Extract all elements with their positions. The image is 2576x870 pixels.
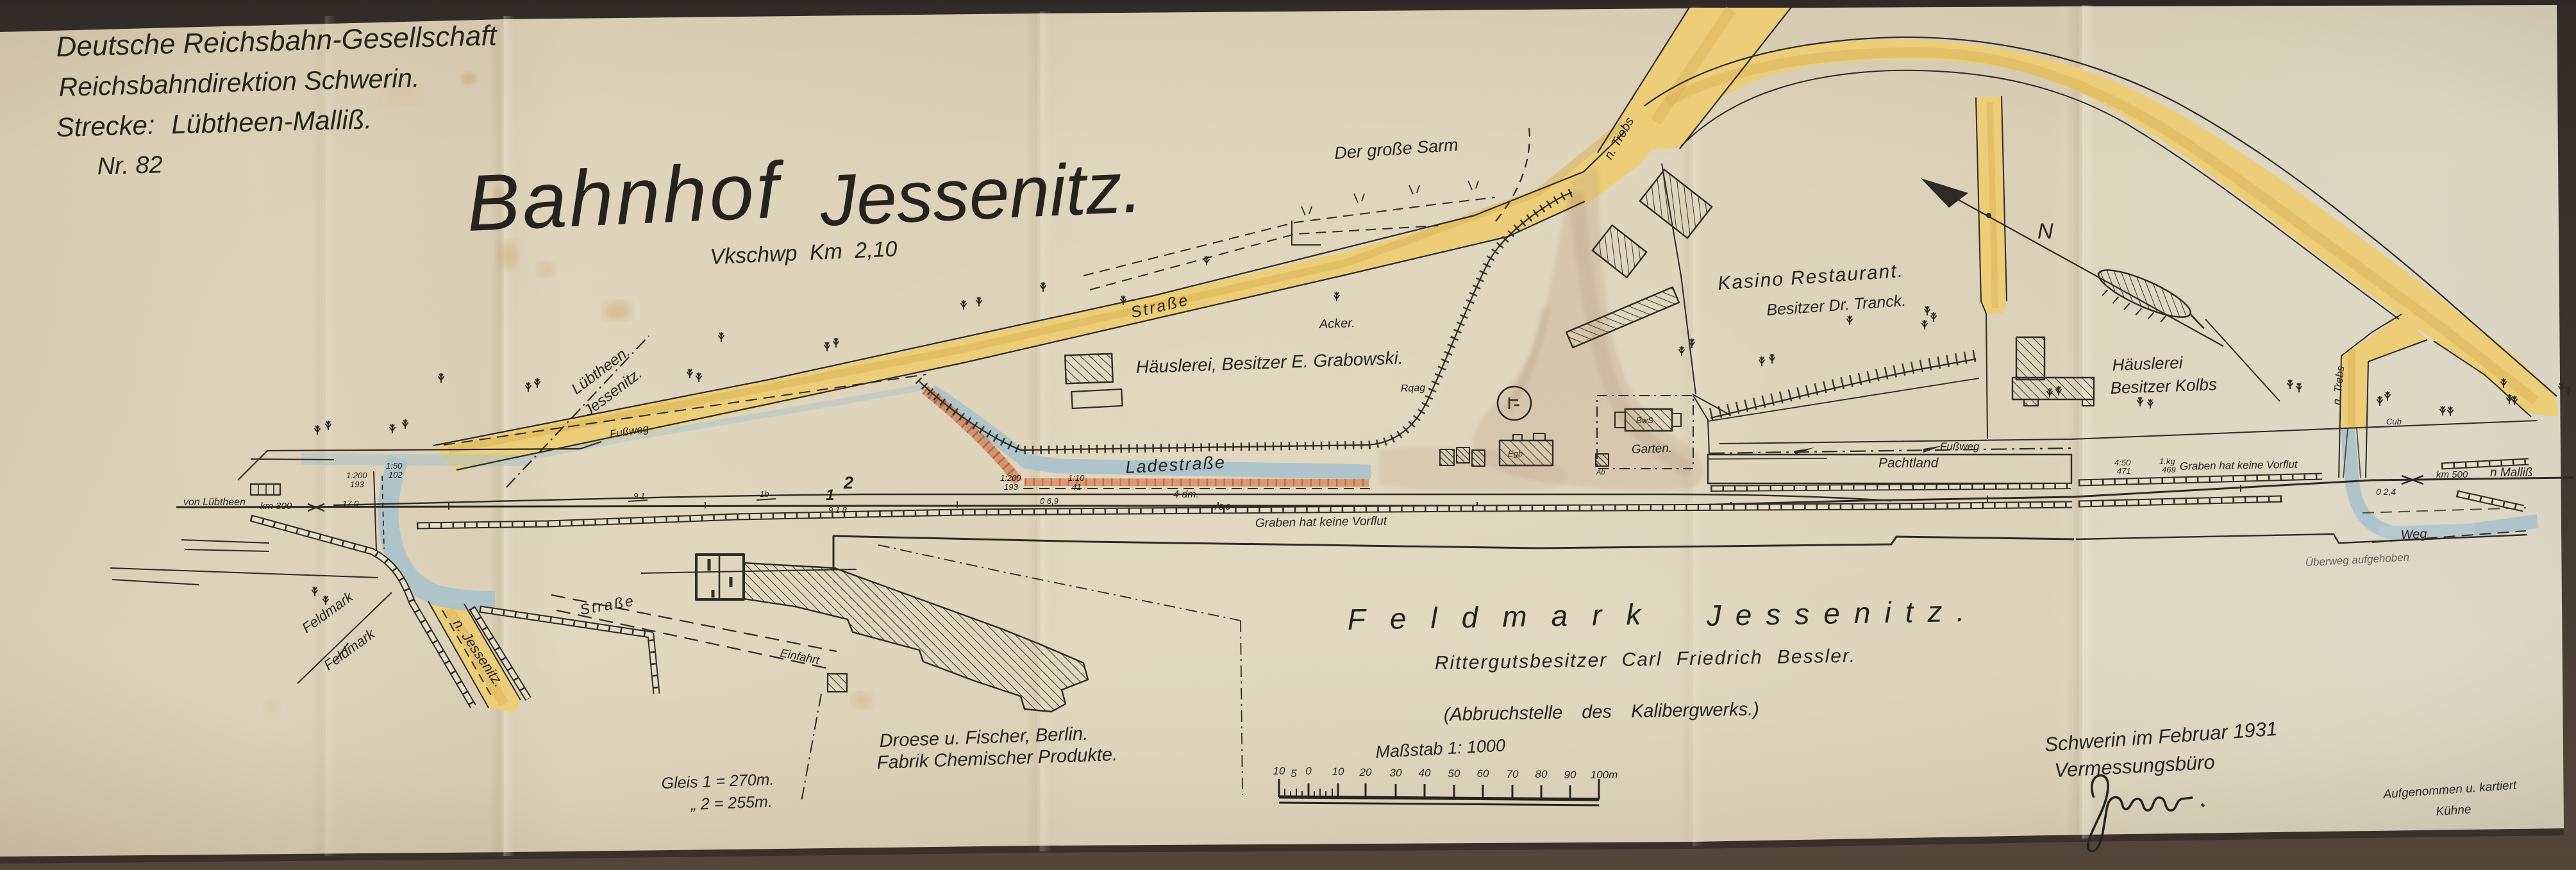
svg-text:Rqag: Rqag <box>1401 383 1426 394</box>
svg-text:Besitzer Kolbs: Besitzer Kolbs <box>2110 374 2217 397</box>
svg-text:Jessenitz.: Jessenitz. <box>818 146 1144 241</box>
svg-text:0 2,4: 0 2,4 <box>2376 487 2396 497</box>
svg-text:Feldmark: Feldmark <box>1347 597 1666 636</box>
svg-text:4 dm.: 4 dm. <box>1173 489 1199 500</box>
svg-text:Kühne: Kühne <box>2436 803 2471 819</box>
svg-text:9 1 8: 9 1 8 <box>828 505 848 515</box>
svg-text:Fußweg: Fußweg <box>1940 440 1980 453</box>
svg-text:70: 70 <box>1507 768 1519 780</box>
svg-text:1: 1 <box>826 487 834 504</box>
svg-text:0 6,9: 0 6,9 <box>1040 496 1058 506</box>
svg-text:Häuslerei: Häuslerei <box>2112 353 2184 374</box>
svg-text:17 0: 17 0 <box>342 499 359 508</box>
svg-text:469: 469 <box>2162 465 2176 474</box>
svg-text:30: 30 <box>1390 767 1402 779</box>
svg-text:41: 41 <box>1072 482 1081 492</box>
svg-text:90: 90 <box>1564 769 1577 781</box>
svg-text:n Malliß: n Malliß <box>2490 466 2533 480</box>
svg-text:n 8,0: n 8,0 <box>1212 502 1231 512</box>
svg-text:Egb: Egb <box>1508 449 1523 458</box>
svg-text:Graben hat keine Vorflut: Graben hat keine Vorflut <box>1255 514 1387 530</box>
svg-text:9 1: 9 1 <box>633 491 645 501</box>
svg-text:40: 40 <box>1419 767 1431 779</box>
svg-text:km 300: km 300 <box>260 501 292 512</box>
svg-text:50: 50 <box>1448 767 1460 780</box>
svg-text:80: 80 <box>1535 768 1548 780</box>
svg-text:Weg: Weg <box>2400 527 2427 542</box>
svg-text:193: 193 <box>350 480 364 489</box>
svg-text:0: 0 <box>1305 765 1312 777</box>
svg-text:Ab: Ab <box>1596 469 1605 476</box>
svg-text:Garten.: Garten. <box>1631 442 1672 456</box>
svg-text:„ 2 = 255m.: „ 2 = 255m. <box>690 793 773 814</box>
svg-text:5: 5 <box>1291 767 1297 780</box>
svg-text:Acker.: Acker. <box>1318 316 1355 331</box>
svg-text:193: 193 <box>1004 482 1018 492</box>
svg-text:1b: 1b <box>760 489 769 499</box>
svg-text:1:50: 1:50 <box>386 461 403 471</box>
svg-text:Bahnhof: Bahnhof <box>465 146 787 248</box>
svg-text:Graben hat keine Vorflut: Graben hat keine Vorflut <box>2180 458 2298 473</box>
svg-text:BwS: BwS <box>1636 415 1653 425</box>
svg-text:1:200: 1:200 <box>1000 473 1021 483</box>
svg-text:Jessenitz.: Jessenitz. <box>1705 594 1978 632</box>
svg-text:10: 10 <box>1273 765 1285 777</box>
svg-text:1:10: 1:10 <box>1068 473 1085 483</box>
svg-text:471: 471 <box>2117 466 2131 476</box>
svg-text:60: 60 <box>1477 767 1489 780</box>
svg-text:Cub: Cub <box>2386 417 2402 426</box>
svg-text:1:200: 1:200 <box>346 471 367 480</box>
svg-text:102: 102 <box>389 470 403 480</box>
svg-text:100m: 100m <box>1591 769 1618 781</box>
svg-text:Nr. 82: Nr. 82 <box>97 151 163 180</box>
svg-text:2: 2 <box>843 473 853 492</box>
svg-text:Pachtland: Pachtland <box>1878 456 1939 471</box>
svg-text:N: N <box>2037 219 2053 244</box>
svg-text:10: 10 <box>1332 765 1344 778</box>
svg-text:km 500: km 500 <box>2436 469 2468 480</box>
svg-text:von Lübtheen: von Lübtheen <box>183 497 246 508</box>
svg-text:20: 20 <box>1359 766 1372 778</box>
